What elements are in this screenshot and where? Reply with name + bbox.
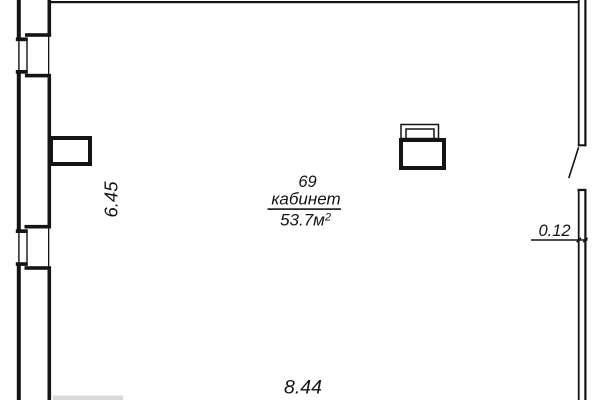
svg-text:0.12: 0.12 [538,222,570,240]
svg-text:69: 69 [298,173,316,191]
svg-text:53.7м2: 53.7м2 [280,211,331,230]
svg-text:8.44: 8.44 [284,377,322,399]
svg-text:кабинет: кабинет [271,190,340,209]
svg-text:6.45: 6.45 [101,181,122,218]
